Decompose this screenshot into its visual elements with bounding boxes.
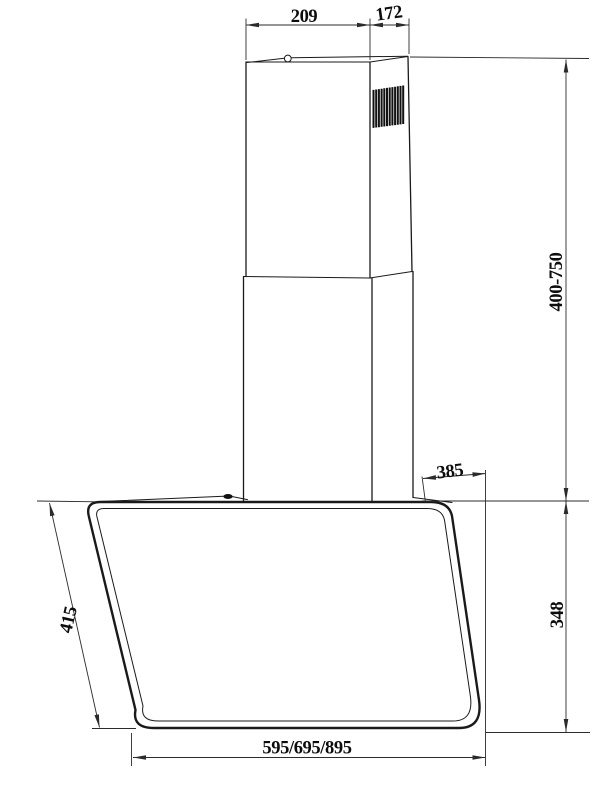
dimension-labels: 209 172 400-750 385 348 415 595/695/895: [56, 2, 568, 758]
dim-label-chimney-top-depth: 172: [374, 2, 403, 26]
mounting-hook-hood: [223, 494, 232, 499]
dim-label-chimney-top-width: 209: [291, 7, 318, 27]
hood-top-back-edge-mid: [233, 497, 248, 500]
hood-panel-inner-outline: [97, 509, 471, 722]
vent-grille: [374, 86, 404, 128]
chimney-joint-side-edge: [370, 272, 412, 279]
drawing-page: 209 172 400-750 385 348 415 595/695/895: [0, 0, 612, 791]
chimney-top-back-edge: [291, 56, 408, 58]
ext-line-chimney-top-to-right: [410, 57, 589, 59]
mounting-hook-chimney: [284, 55, 291, 62]
dim-label-hood-width-variants: 595/695/895: [262, 739, 351, 759]
dim-label-hood-right-height: 348: [548, 602, 568, 629]
grille-slats: [374, 86, 404, 128]
ext-line-hood-top-to-left: [37, 501, 97, 502]
hood-top-back-edge-left: [100, 496, 224, 501]
chimney-upper-side-right-edge: [408, 57, 412, 272]
hood-panel-outer-outline: [88, 502, 479, 728]
hood-technical-drawing: 209 172 400-750 385 348 415 595/695/895: [0, 0, 612, 791]
chimney-joint-front-edge: [244, 277, 370, 279]
chimney-top-right-edge: [370, 57, 408, 63]
chimney-lower-section: [244, 272, 414, 503]
hood-body: [88, 494, 479, 728]
dim-label-hood-top-depth: 385: [436, 460, 465, 483]
dim-label-chimney-height-range: 400-750: [547, 252, 567, 311]
dimension-lines: [37, 19, 590, 767]
